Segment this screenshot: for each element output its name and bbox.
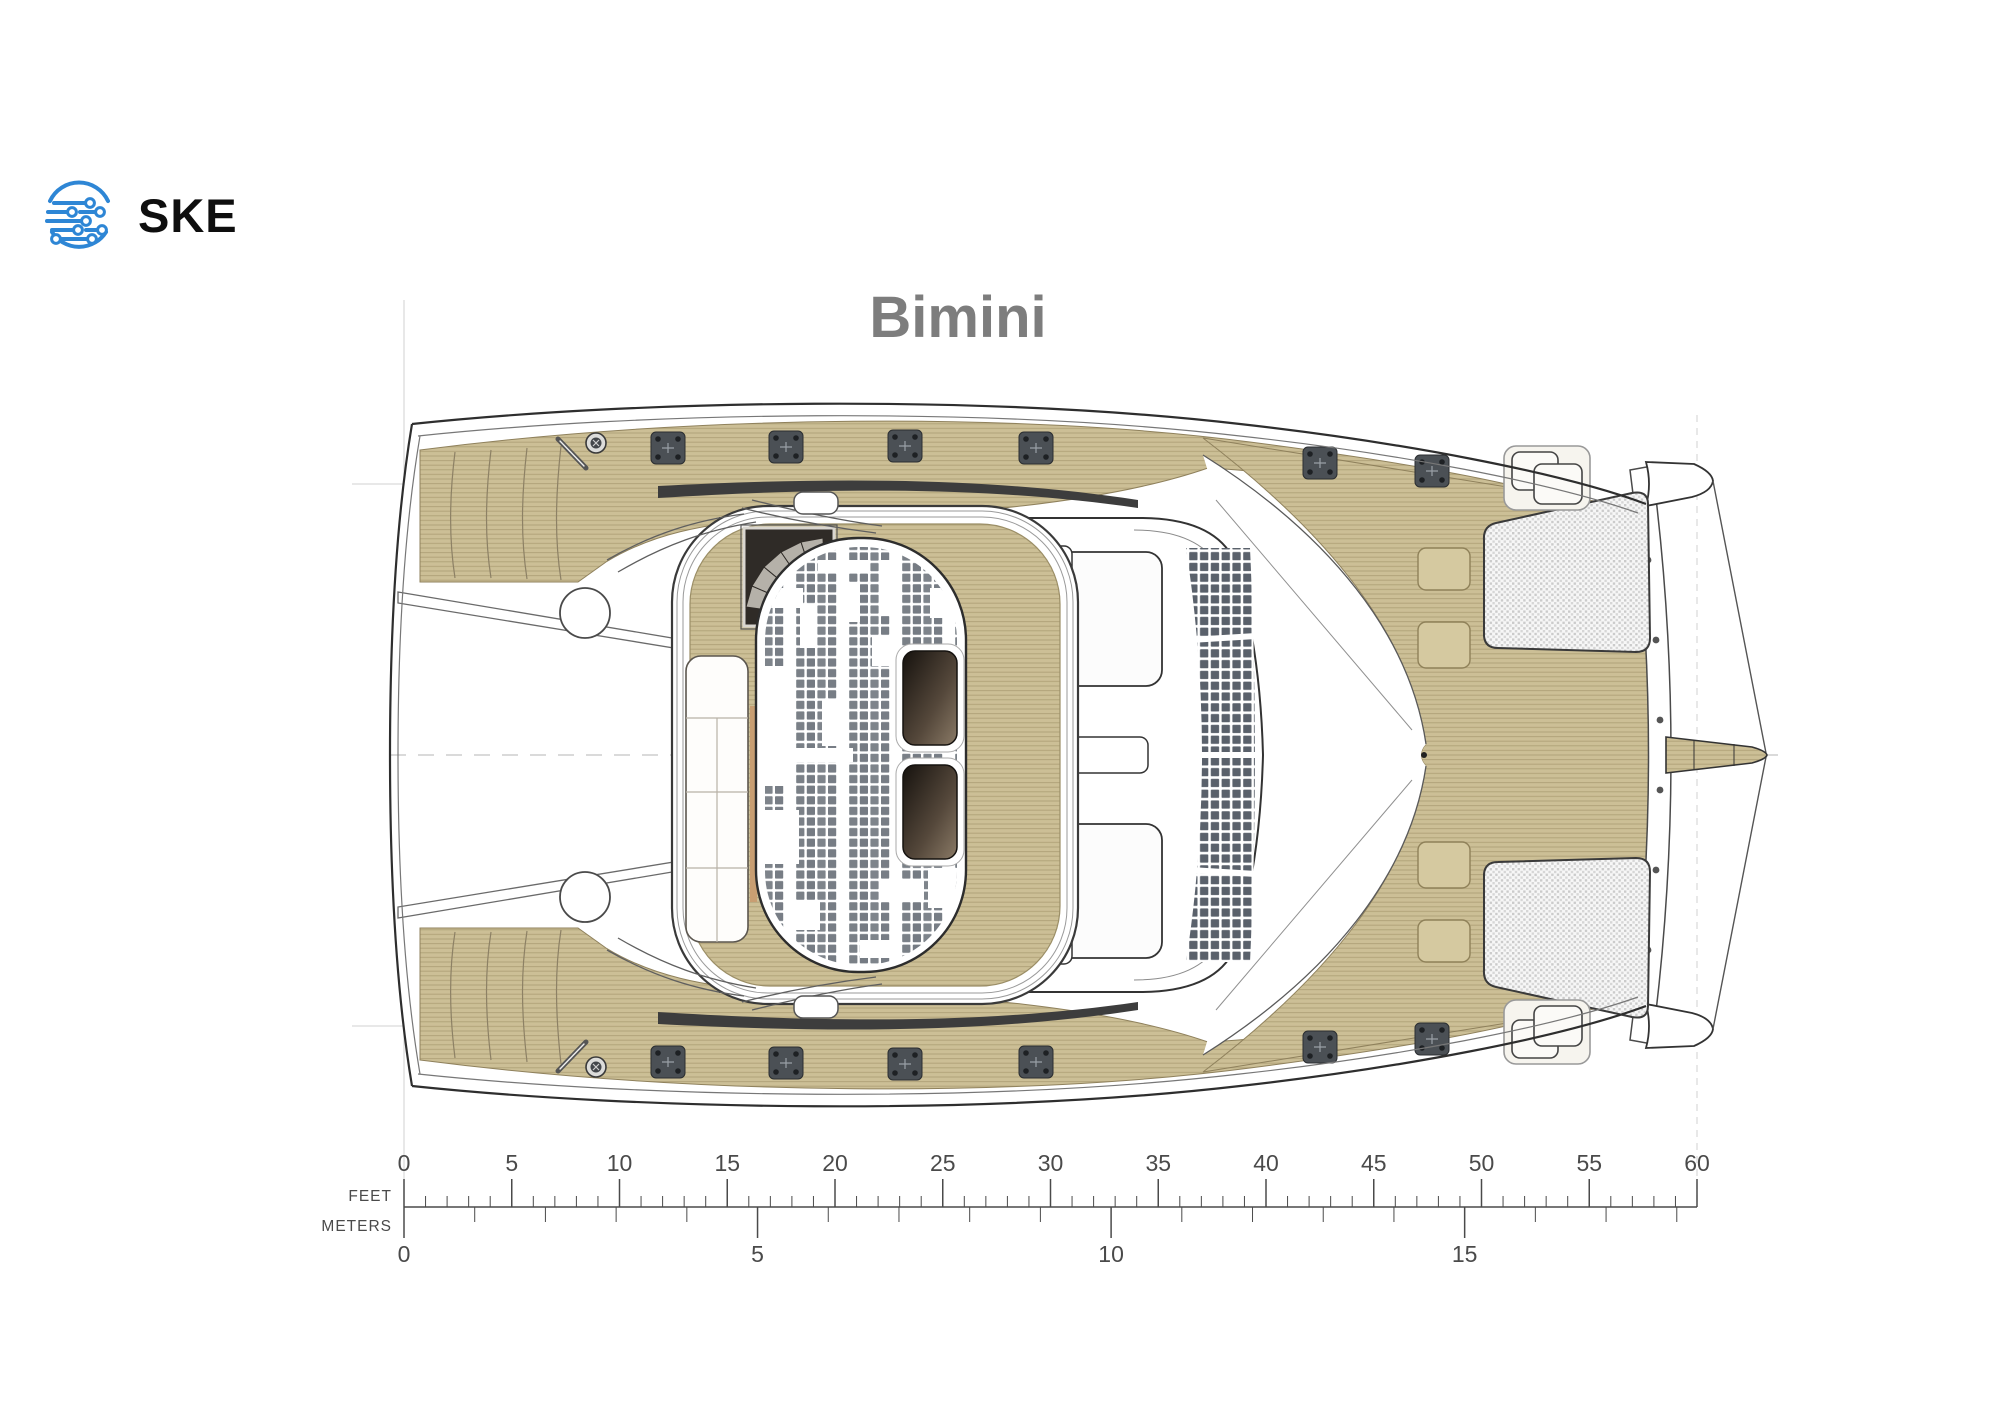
winch — [586, 1057, 606, 1077]
round-hatch — [560, 872, 610, 922]
meters-tick-label: 15 — [1452, 1241, 1478, 1267]
cleat — [769, 431, 803, 463]
meters-unit-label: METERS — [321, 1218, 392, 1235]
feet-tick-label: 10 — [607, 1150, 633, 1176]
flybridge — [607, 492, 1078, 1018]
feet-tick-label: 15 — [714, 1150, 740, 1176]
feet-tick-label: 45 — [1361, 1150, 1387, 1176]
meters-tick-label: 5 — [751, 1241, 764, 1267]
meters-tick-label: 10 — [1098, 1241, 1124, 1267]
feet-tick-label: 60 — [1684, 1150, 1710, 1176]
cleat — [1415, 455, 1449, 487]
bowsprit — [1666, 737, 1767, 773]
cleat — [1019, 1046, 1053, 1078]
round-hatch — [560, 588, 610, 638]
cleat — [888, 1048, 922, 1080]
feet-unit-label: FEET — [348, 1188, 392, 1205]
cleat — [1303, 1031, 1337, 1063]
feet-tick-label: 5 — [505, 1150, 518, 1176]
cleat — [888, 430, 922, 462]
starboard-bow-tip — [1646, 1004, 1713, 1048]
feet-tick-label: 55 — [1576, 1150, 1602, 1176]
feet-tick-label: 35 — [1145, 1150, 1171, 1176]
cleat — [769, 1047, 803, 1079]
cleat — [1415, 1023, 1449, 1055]
feet-tick-label: 25 — [930, 1150, 956, 1176]
feet-tick-label: 50 — [1469, 1150, 1495, 1176]
cleat — [651, 1046, 685, 1078]
slide: SKE Bimini — [0, 0, 2000, 1414]
port-bow-tip — [1646, 462, 1713, 506]
deck-plan-drawing: 051015202530354045505560051015FEETMETERS — [0, 0, 2000, 1414]
cleat — [1019, 432, 1053, 464]
scale-bar: 051015202530354045505560051015FEETMETERS — [321, 1150, 1709, 1267]
winch — [586, 433, 606, 453]
cleat — [651, 432, 685, 464]
feet-tick-label: 40 — [1253, 1150, 1279, 1176]
feet-tick-label: 30 — [1038, 1150, 1064, 1176]
feet-tick-label: 20 — [822, 1150, 848, 1176]
feet-tick-label: 0 — [398, 1150, 411, 1176]
solar-strip — [1186, 548, 1258, 962]
solar-hardtop — [756, 538, 966, 972]
cleat — [1303, 447, 1337, 479]
meters-tick-label: 0 — [398, 1241, 411, 1267]
sun-lounger — [686, 656, 757, 942]
bow-fitting-dot — [1421, 752, 1427, 758]
